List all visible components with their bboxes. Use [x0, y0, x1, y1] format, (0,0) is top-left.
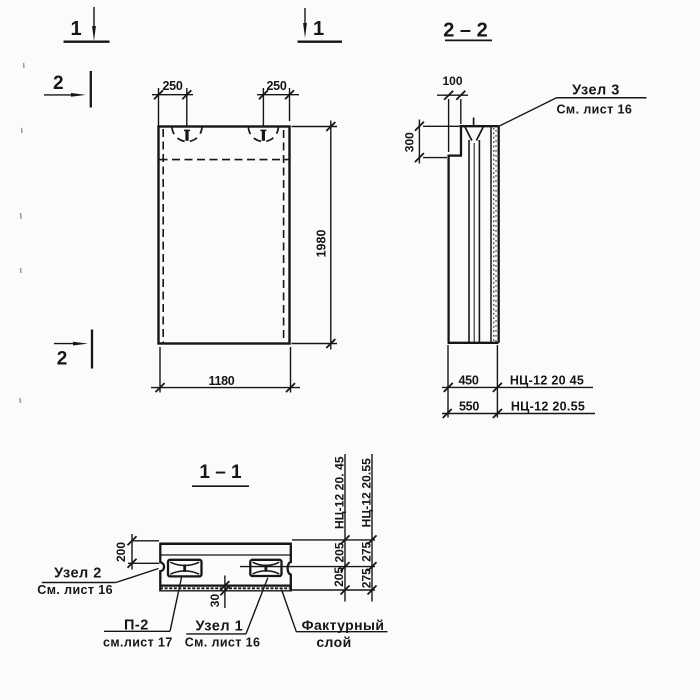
- svg-text:200: 200: [114, 542, 128, 562]
- svg-text:См. лист 16: См. лист 16: [37, 583, 113, 597]
- svg-text:1: 1: [313, 18, 324, 40]
- svg-text:Узел 2: Узел 2: [54, 566, 102, 582]
- svg-text:Узел 3: Узел 3: [572, 82, 620, 98]
- svg-text:275: 275: [359, 568, 373, 588]
- svg-text:250: 250: [163, 79, 183, 93]
- svg-text:275: 275: [359, 541, 373, 561]
- svg-text:205: 205: [332, 567, 346, 587]
- svg-text:см.лист 17: см.лист 17: [103, 636, 173, 650]
- svg-text:205: 205: [333, 542, 347, 562]
- svg-text:1180: 1180: [209, 374, 235, 388]
- svg-text:См. лист 16: См. лист 16: [185, 635, 261, 649]
- svg-text:НЦ-12 20.55: НЦ-12 20.55: [360, 458, 374, 527]
- svg-text:30: 30: [208, 594, 222, 608]
- svg-text:300: 300: [403, 132, 417, 152]
- svg-text:Фактурный: Фактурный: [302, 617, 385, 633]
- svg-text:250: 250: [267, 79, 287, 93]
- svg-text:100: 100: [442, 74, 462, 88]
- svg-text:НЦ-12 20.55: НЦ-12 20.55: [511, 399, 585, 413]
- svg-text:550: 550: [459, 399, 479, 413]
- svg-text:2 – 2: 2 – 2: [443, 19, 487, 41]
- svg-text:2: 2: [53, 73, 64, 94]
- svg-text:1 – 1: 1 – 1: [199, 462, 242, 483]
- svg-text:450: 450: [459, 374, 479, 388]
- svg-text:Узел 1: Узел 1: [195, 619, 243, 635]
- svg-text:НЦ-12 20 45: НЦ-12 20 45: [510, 374, 584, 388]
- svg-text:См. лист 16: См. лист 16: [557, 102, 633, 116]
- svg-text:1: 1: [70, 18, 81, 40]
- svg-text:1980: 1980: [315, 230, 329, 258]
- svg-text:2: 2: [57, 349, 68, 370]
- svg-text:слой: слой: [316, 634, 351, 650]
- svg-text:НЦ-12 20. 45: НЦ-12 20. 45: [333, 456, 347, 529]
